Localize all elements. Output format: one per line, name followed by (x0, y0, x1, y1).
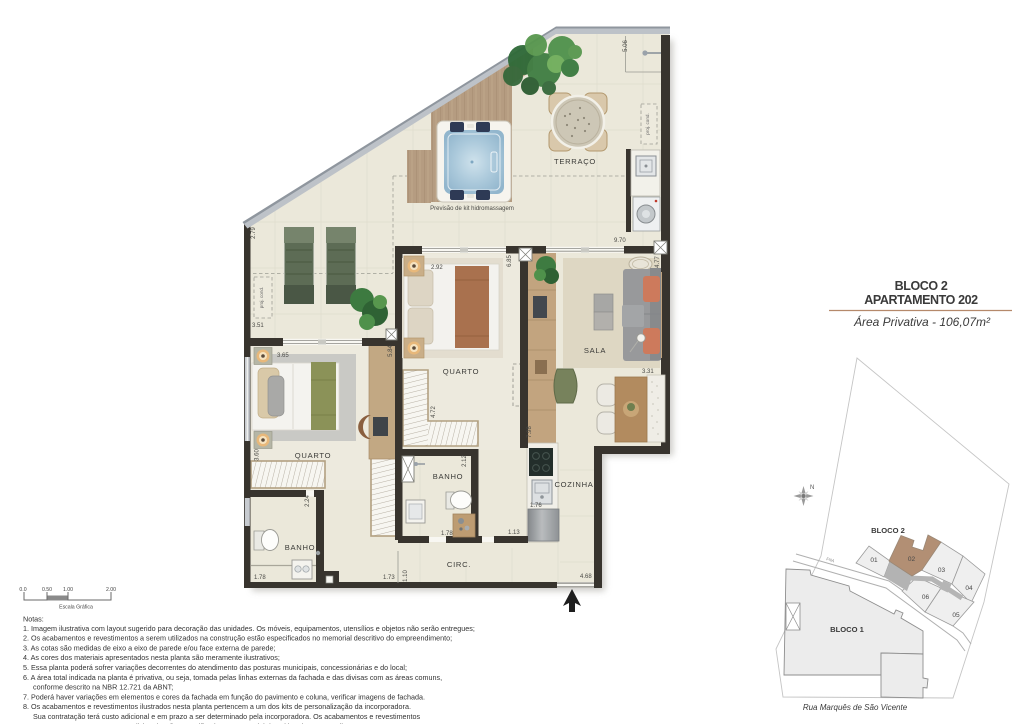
svg-text:01: 01 (870, 557, 878, 564)
svg-text:1.73: 1.73 (383, 575, 395, 581)
svg-text:4.72: 4.72 (431, 406, 437, 418)
svg-text:04: 04 (965, 585, 973, 592)
svg-text:6.85: 6.85 (507, 255, 513, 267)
svg-text:QUARTO: QUARTO (443, 367, 479, 376)
svg-text:03: 03 (938, 567, 946, 574)
svg-text:0.0: 0.0 (19, 587, 26, 593)
svg-text:Escala Gráfica: Escala Gráfica (59, 605, 93, 611)
svg-text:BLOCO 1: BLOCO 1 (830, 625, 865, 634)
svg-text:Notas:: Notas: (23, 615, 44, 624)
svg-text:7.98: 7.98 (527, 426, 533, 438)
svg-text:3.51: 3.51 (252, 323, 264, 329)
svg-text:7. Poderá haver variações em e: 7. Poderá haver variações em elementos e… (23, 692, 425, 701)
svg-text:2.92: 2.92 (431, 265, 443, 271)
svg-text:BLOCO 2: BLOCO 2 (871, 526, 905, 535)
svg-text:TERRAÇO: TERRAÇO (554, 157, 596, 166)
svg-text:APARTAMENTO 202: APARTAMENTO 202 (864, 293, 978, 307)
svg-text:4.68: 4.68 (580, 574, 592, 580)
svg-text:2.12: 2.12 (462, 455, 468, 467)
svg-text:proj. cond.: proj. cond. (645, 113, 650, 134)
svg-text:BANHO: BANHO (285, 543, 316, 552)
svg-text:3.60: 3.60 (255, 449, 261, 461)
svg-text:02: 02 (908, 556, 916, 563)
svg-text:2.79: 2.79 (251, 227, 257, 239)
svg-text:3.31: 3.31 (642, 369, 654, 375)
svg-text:Área Privativa - 106,07m²: Área Privativa - 106,07m² (853, 314, 991, 329)
svg-text:5.84: 5.84 (388, 345, 394, 357)
svg-text:BLOCO 2: BLOCO 2 (895, 279, 948, 293)
svg-text:3. As cotas são medidas de eix: 3. As cotas são medidas de eixo a eixo d… (23, 643, 276, 652)
svg-text:6. A área total indicada na pl: 6. A área total indicada na planta é pri… (23, 673, 442, 682)
svg-text:COZINHA: COZINHA (554, 480, 593, 489)
svg-text:N: N (810, 485, 814, 491)
svg-text:CIRC.: CIRC. (447, 560, 471, 569)
svg-text:proj. cond.: proj. cond. (259, 287, 264, 308)
svg-text:SALA: SALA (584, 346, 606, 355)
svg-text:Previsão de kit hidromassagem: Previsão de kit hidromassagem (430, 206, 514, 212)
svg-text:BANHO: BANHO (433, 472, 464, 481)
svg-text:9.70: 9.70 (614, 238, 626, 244)
svg-text:06: 06 (922, 594, 930, 601)
svg-text:4.77: 4.77 (655, 256, 661, 268)
svg-text:1.78: 1.78 (441, 531, 453, 537)
svg-text:1.78: 1.78 (254, 575, 266, 581)
svg-text:1.10: 1.10 (403, 570, 409, 582)
svg-text:1.13: 1.13 (508, 530, 520, 536)
svg-text:5.06: 5.06 (623, 40, 629, 52)
svg-text:05: 05 (952, 612, 960, 619)
svg-text:3.65: 3.65 (277, 353, 289, 359)
svg-text:Sua contratação terá custo adi: Sua contratação terá custo adicional e e… (33, 712, 421, 721)
svg-text:4. As cores dos materiais apre: 4. As cores dos materiais apresentados n… (23, 653, 280, 662)
svg-text:2.24: 2.24 (305, 495, 311, 507)
svg-text:conforme descrito na NBR 12.72: conforme descrito na NBR 12.721 da ABNT; (33, 683, 173, 692)
svg-text:8. Os acabamentos e revestimen: 8. Os acabamentos e revestimentos ilustr… (23, 702, 411, 711)
svg-text:2. Os acabamentos e revestimen: 2. Os acabamentos e revestimentos a sere… (23, 634, 452, 643)
svg-text:1. Imagem ilustrativa com layo: 1. Imagem ilustrativa com layout sugerid… (23, 624, 475, 633)
svg-text:Rua Marquês de São Vicente: Rua Marquês de São Vicente (803, 703, 908, 712)
svg-text:1.76: 1.76 (530, 503, 542, 509)
svg-text:QUARTO: QUARTO (295, 451, 331, 460)
svg-text:5. Essa planta poderá sofrer v: 5. Essa planta poderá sofrer variações d… (23, 663, 407, 672)
